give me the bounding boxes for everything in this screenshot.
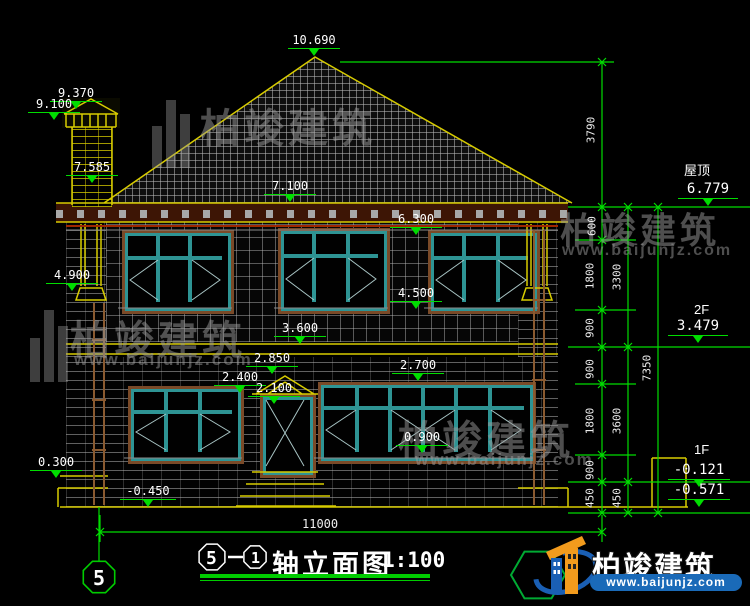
elevation-marker: 2.100 — [248, 381, 300, 409]
elevation-marker: 0.900 — [396, 430, 448, 458]
elevation-marker: 9.100 — [28, 97, 80, 125]
elevation-triangle-icon — [411, 228, 421, 240]
elevation-triangle-icon — [413, 374, 423, 386]
cad-linework — [0, 0, 750, 606]
dim-900: 900 — [584, 359, 597, 379]
elevation-marker: 7.100 — [264, 179, 316, 207]
dim-450: 450 — [584, 488, 597, 508]
logo-url-text: www.baijunjz.com — [590, 574, 742, 591]
elevation-triangle-icon — [694, 500, 704, 512]
title-underline-thin — [200, 580, 430, 581]
dim-7350: 7350 — [641, 355, 654, 382]
roof-level-value: 6.779 — [678, 181, 738, 211]
elevation-triangle-icon — [309, 49, 319, 61]
dim-900: 900 — [584, 318, 597, 338]
dim-3600: 3600 — [611, 408, 624, 435]
roof-level-label: 屋顶 — [684, 160, 710, 179]
elevation-triangle-icon — [267, 367, 277, 379]
dim-450: 450 — [611, 488, 624, 508]
axis-grid-number: 5 — [93, 566, 105, 590]
drain-pipes — [92, 230, 546, 505]
elevation-triangle-icon — [285, 195, 295, 207]
title-underline — [200, 574, 430, 578]
casement-diagonals — [130, 258, 526, 466]
elevation-marker: -0.450 — [120, 484, 176, 512]
dim-3790: 3790 — [585, 117, 598, 144]
drawing-scale: 1:100 — [382, 548, 445, 572]
elevation-triangle-icon — [67, 284, 77, 296]
elevation-marker: 3.600 — [274, 321, 326, 349]
title-axis-number-5: 5 — [206, 548, 217, 569]
1f-level-label: 1F — [694, 442, 709, 457]
elevation-triangle-icon — [295, 337, 305, 349]
dim-900: 900 — [584, 460, 597, 480]
elevation-marker: 4.500 — [390, 286, 442, 314]
elevation-triangle-icon — [703, 199, 713, 211]
cad-elevation-canvas: 柏竣建筑 柏竣建筑 www.baijunjz.com 柏竣建筑 www.baij… — [0, 0, 750, 606]
logo-building-icon — [551, 558, 562, 594]
dim-3300: 3300 — [611, 264, 624, 291]
elevation-marker-ridge: 10.690 — [288, 33, 340, 61]
elevation-triangle-icon — [87, 176, 97, 188]
elevation-marker: 4.900 — [46, 268, 98, 296]
elevation-triangle-icon — [51, 471, 61, 483]
dim-1800: 1800 — [584, 408, 597, 435]
elevation-triangle-icon — [269, 397, 279, 409]
dim-1800: 1800 — [584, 263, 597, 290]
elevation-marker: 2.700 — [392, 358, 444, 386]
elevation-triangle-icon — [411, 302, 421, 314]
elevation-triangle-icon — [143, 500, 153, 512]
2f-level-label: 2F — [694, 302, 709, 317]
elevation-triangle-icon — [417, 446, 427, 458]
elevation-triangle-icon — [693, 336, 703, 348]
dim-600: 600 — [586, 216, 599, 236]
elevation-marker: 7.585 — [66, 160, 118, 188]
1f-level-value-bottom: -0.571 — [668, 482, 730, 512]
title-axis-number-1: 1 — [251, 549, 260, 567]
elevation-marker: 6.300 — [390, 212, 442, 240]
logo-building-icon — [565, 548, 578, 594]
elevation-marker: 0.300 — [30, 455, 82, 483]
elevation-triangle-icon — [235, 386, 245, 398]
2f-level-value: 3.479 — [668, 318, 728, 348]
elevation-triangle-icon — [49, 113, 59, 125]
dim-total-width: 11000 — [302, 517, 338, 531]
